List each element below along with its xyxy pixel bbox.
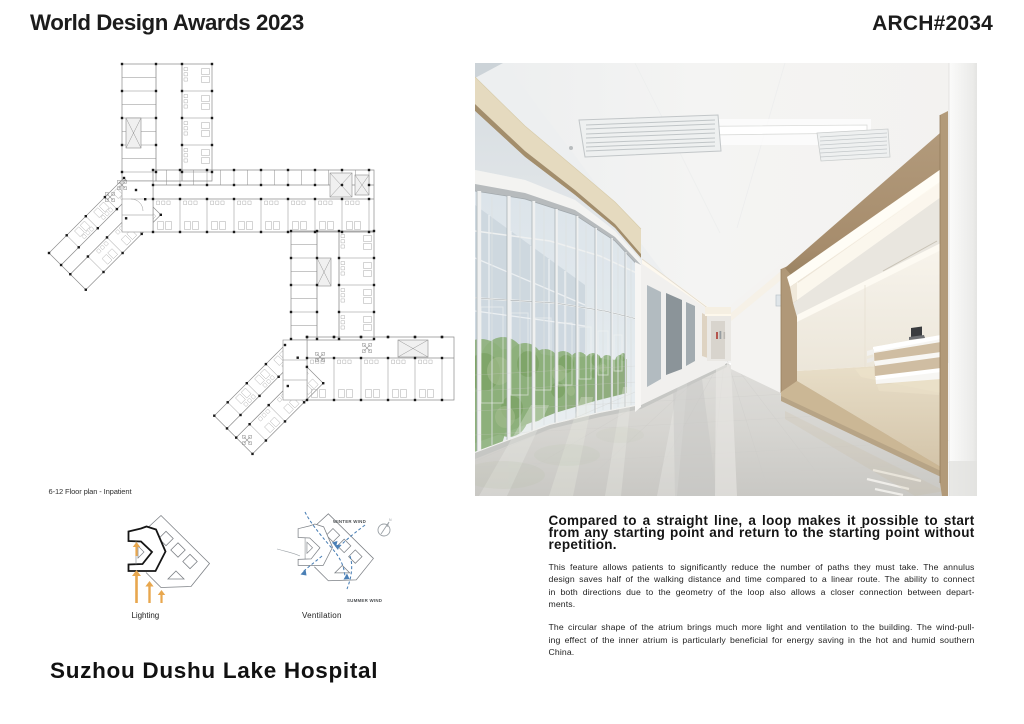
svg-text:SUMMER WIND: SUMMER WIND	[347, 598, 382, 603]
svg-text:WINTER WIND: WINTER WIND	[333, 519, 366, 524]
svg-text:N: N	[389, 518, 392, 522]
